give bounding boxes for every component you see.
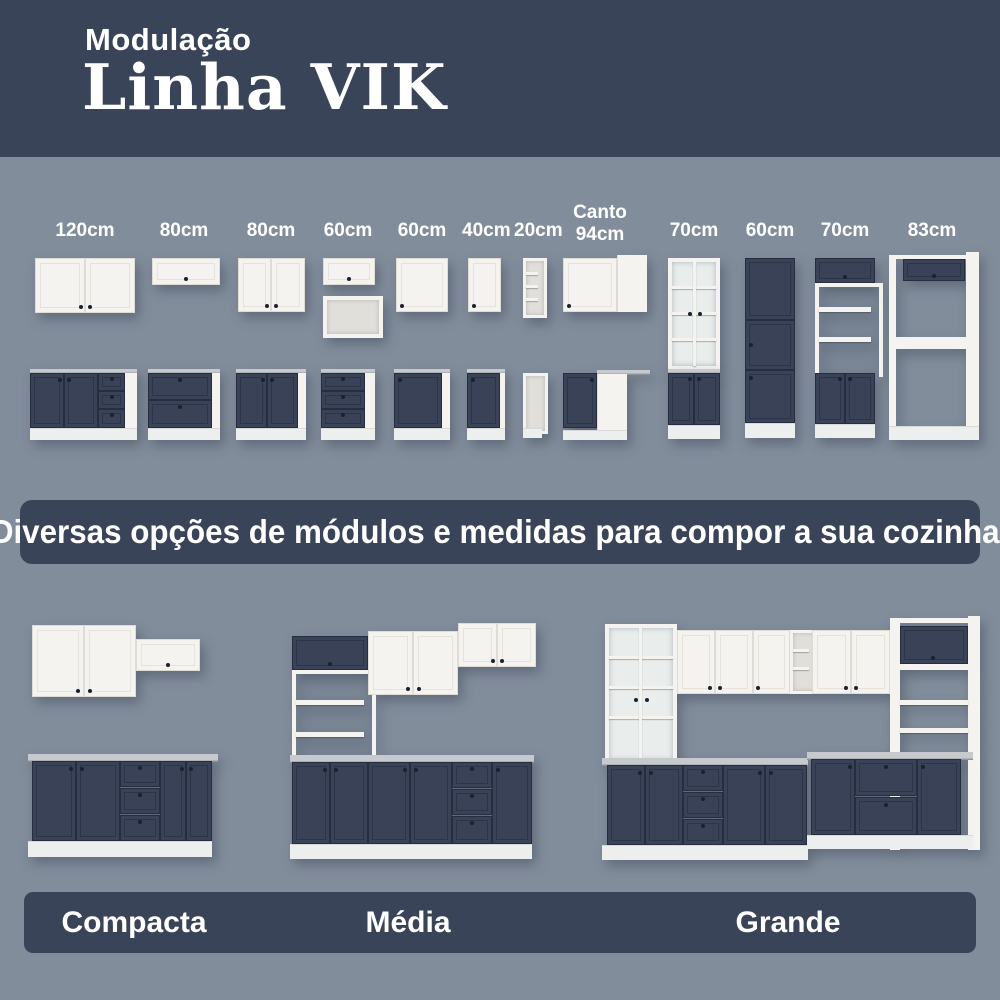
knob	[110, 395, 114, 399]
side-panel	[500, 373, 505, 428]
knob	[341, 395, 345, 399]
plinth	[30, 428, 137, 440]
pantry-cabinet	[741, 198, 799, 443]
knob	[261, 378, 265, 382]
side-panel	[298, 373, 306, 428]
knob	[270, 378, 274, 382]
cabinet-door	[668, 373, 694, 425]
knob	[138, 766, 142, 770]
drawer-front	[98, 391, 125, 409]
plinth	[602, 845, 808, 860]
module-80cm-a: 80cm	[146, 198, 222, 443]
flip-door	[292, 636, 368, 670]
plinth	[321, 428, 375, 440]
tower-frame-top	[890, 618, 980, 623]
modules-strip: 120cm 80cm	[0, 198, 1000, 443]
drawer-front	[452, 789, 492, 815]
knob	[701, 797, 705, 801]
knob	[921, 765, 925, 769]
cabinet-door	[368, 631, 413, 695]
knob	[470, 794, 474, 798]
knob	[138, 820, 142, 824]
knob	[470, 821, 474, 825]
knob	[334, 768, 338, 772]
header-title: Linha VIK	[82, 50, 447, 124]
drawer-front	[148, 400, 212, 428]
knob	[417, 687, 421, 691]
side-panel	[125, 373, 137, 428]
base-cabinet	[318, 198, 378, 443]
glass-tower-frame	[605, 624, 677, 764]
shelf	[819, 307, 871, 312]
cabinet-door	[753, 630, 790, 694]
knob	[701, 824, 705, 828]
side-panel	[365, 373, 375, 428]
tower-shelf	[900, 664, 968, 670]
header-band: Modulação Linha VIK	[0, 0, 1000, 157]
knob	[645, 698, 649, 702]
kitchen-parts	[288, 615, 538, 865]
knob	[708, 686, 712, 690]
cabinet-door	[413, 631, 458, 695]
base-cabinet	[392, 198, 452, 443]
kitchen-parts	[20, 615, 230, 865]
cabinet-door	[845, 373, 875, 424]
cabinet-door	[368, 762, 410, 844]
plinth	[668, 425, 720, 439]
drawer-front	[321, 409, 365, 428]
cabinet-door	[715, 630, 753, 694]
knob	[323, 768, 327, 772]
knob	[491, 659, 495, 663]
plinth	[148, 428, 220, 440]
knob	[848, 765, 852, 769]
drawer-front	[120, 788, 160, 814]
module-83cm-appliance-tower: 83cm	[889, 198, 984, 443]
kitchen-compacta-illustration	[20, 615, 230, 865]
knob	[110, 377, 114, 381]
knob	[848, 377, 852, 381]
shelf	[900, 728, 968, 733]
plinth	[394, 428, 450, 440]
cabinet-door	[497, 623, 536, 667]
drawer-front	[98, 373, 125, 391]
module-20cm: 20cm	[514, 198, 558, 443]
knob	[403, 768, 407, 772]
knob	[110, 413, 114, 417]
knob	[178, 405, 182, 409]
knob	[414, 768, 418, 772]
door-panel	[745, 320, 795, 370]
module-canto-94cm: Canto94cm	[558, 198, 650, 443]
knob	[649, 771, 653, 775]
plinth	[523, 428, 542, 438]
cabinet-door	[84, 625, 136, 697]
plinth	[889, 426, 979, 440]
knob	[701, 770, 705, 774]
knob	[341, 413, 345, 417]
cabinet-door	[64, 373, 98, 428]
tower-frame-column	[968, 616, 980, 850]
countertop	[602, 758, 808, 765]
knob	[471, 378, 475, 382]
knob	[718, 686, 722, 690]
frame-column	[966, 252, 979, 440]
plinth	[563, 430, 627, 440]
module-40cm: 40cm	[462, 198, 506, 443]
knob	[341, 377, 345, 381]
knob	[638, 771, 642, 775]
knob	[76, 689, 80, 693]
knob	[67, 378, 71, 382]
knob	[80, 767, 84, 771]
drawer-front	[98, 409, 125, 428]
shelf	[296, 732, 364, 737]
cabinet-door	[410, 762, 452, 844]
shelf	[296, 700, 364, 705]
knob	[884, 765, 888, 769]
kitchen-size-label-media: Média	[328, 892, 488, 953]
corner-base-cabinet	[558, 198, 650, 443]
kitchen-parts	[598, 608, 980, 860]
knob	[69, 767, 73, 771]
door-panel	[745, 370, 795, 423]
module-60cm-b: 60cm	[392, 198, 452, 443]
open-base-box	[523, 373, 548, 434]
drawer-front	[683, 792, 723, 818]
cabinet-door	[330, 762, 368, 844]
side-panel	[442, 373, 450, 428]
cabinet-door	[694, 373, 720, 425]
glass-interior	[609, 628, 673, 760]
module-80cm-b: 80cm	[234, 198, 308, 443]
drawer-front	[120, 815, 160, 841]
flip-door	[903, 259, 965, 281]
cabinet-door	[267, 373, 298, 428]
knob	[884, 803, 888, 807]
cabinet-door	[160, 761, 186, 841]
knob	[931, 656, 935, 660]
cabinet-door	[811, 759, 855, 835]
cabinet-door	[851, 630, 890, 694]
frame-column	[889, 255, 896, 440]
open-shelf-section	[815, 283, 883, 377]
knob	[470, 767, 474, 771]
cabinet-door	[815, 373, 845, 424]
kitchen-media-illustration	[288, 615, 538, 865]
shelf	[819, 337, 871, 342]
drawer-front	[452, 762, 492, 788]
cabinet-door	[32, 761, 76, 841]
tower-cabinet	[811, 198, 879, 443]
kitchen-size-label-grande: Grande	[698, 892, 878, 953]
cabinet-door	[394, 373, 442, 428]
shelf	[793, 649, 809, 652]
base-cabinet	[234, 198, 308, 443]
infographic-root: Modulação Linha VIK 120cm 80c	[0, 0, 1000, 1000]
knob	[769, 771, 773, 775]
cabinet-door	[917, 759, 961, 835]
knob	[932, 274, 936, 278]
plinth	[28, 841, 212, 857]
base-cabinet	[30, 198, 140, 443]
knob	[180, 767, 184, 771]
drawer-front	[321, 391, 365, 409]
knob	[688, 377, 692, 381]
knob	[189, 767, 193, 771]
cabinet-door	[32, 625, 84, 697]
glass-door-divider	[639, 628, 642, 760]
message-banner: Diversas opções de módulos e medidas par…	[20, 500, 980, 564]
base-cabinet	[146, 198, 222, 443]
knob	[843, 275, 847, 279]
base-cabinet	[664, 198, 724, 443]
knob	[166, 663, 170, 667]
cabinet-door	[186, 761, 212, 841]
module-60cm-pantry-tower: 60cm	[741, 198, 799, 443]
cabinet-door	[812, 630, 851, 694]
plinth	[745, 423, 795, 438]
cabinet-door	[563, 373, 597, 428]
cabinet-door	[467, 373, 500, 428]
cabinet-door	[765, 765, 807, 845]
appliance-surround	[889, 198, 984, 443]
knob	[634, 698, 638, 702]
mid-shelf	[896, 337, 966, 349]
drawer-front	[683, 819, 723, 845]
cabinet-door	[492, 762, 532, 844]
flip-door	[136, 639, 200, 671]
knob	[138, 793, 142, 797]
knob	[178, 378, 182, 382]
knob	[500, 659, 504, 663]
kitchen-size-label-compacta: Compacta	[39, 892, 229, 953]
module-120cm: 120cm	[30, 198, 140, 443]
knob	[838, 377, 842, 381]
flip-door	[900, 626, 968, 664]
plinth	[807, 835, 973, 849]
drawer-front	[321, 373, 365, 391]
base-shelf-unit	[514, 198, 558, 443]
cabinet-door	[677, 630, 715, 694]
module-60cm-a: 60cm	[318, 198, 378, 443]
plinth	[236, 428, 306, 440]
cabinet-door	[723, 765, 765, 845]
countertop	[28, 754, 218, 761]
plinth	[815, 424, 875, 438]
knob	[756, 686, 760, 690]
cabinet-door	[30, 373, 64, 428]
plinth	[467, 428, 505, 440]
cabinet-door	[458, 623, 497, 667]
drawer-front	[148, 373, 212, 400]
knob	[749, 343, 753, 347]
knob	[854, 686, 858, 690]
module-70cm-glass-tower: 70cm	[664, 198, 724, 443]
door-panel	[745, 258, 795, 320]
knob	[328, 662, 332, 666]
open-shelf-section	[292, 670, 376, 766]
knob	[844, 686, 848, 690]
cabinet-door	[236, 373, 267, 428]
shelf	[793, 667, 809, 670]
knob	[58, 378, 62, 382]
flip-door	[815, 258, 875, 283]
base-cabinet	[462, 198, 506, 443]
drawer-front	[452, 816, 492, 844]
kitchen-grande-illustration	[598, 608, 980, 860]
corner-panel	[597, 374, 627, 430]
knob	[406, 687, 410, 691]
drawer-front	[855, 797, 917, 835]
knob	[88, 689, 92, 693]
countertop	[290, 755, 534, 762]
knob	[590, 378, 594, 382]
drawer-front	[120, 761, 160, 787]
countertop	[807, 752, 973, 759]
side-panel	[212, 373, 220, 428]
knob	[398, 378, 402, 382]
plinth	[290, 844, 532, 859]
kitchen-size-bar: Compacta Média Grande	[24, 892, 976, 953]
knob	[697, 377, 701, 381]
cabinet-door	[76, 761, 120, 841]
banner-text: Diversas opções de módulos e medidas par…	[0, 513, 1000, 551]
drawer-front	[683, 765, 723, 791]
knob	[496, 768, 500, 772]
drawer-front	[855, 759, 917, 796]
shelf	[900, 700, 968, 705]
cabinet-door	[607, 765, 645, 845]
cabinet-door	[292, 762, 330, 844]
module-70cm-open-tower: 70cm	[811, 198, 879, 443]
knob	[749, 376, 753, 380]
knob	[758, 771, 762, 775]
cabinet-door	[645, 765, 683, 845]
